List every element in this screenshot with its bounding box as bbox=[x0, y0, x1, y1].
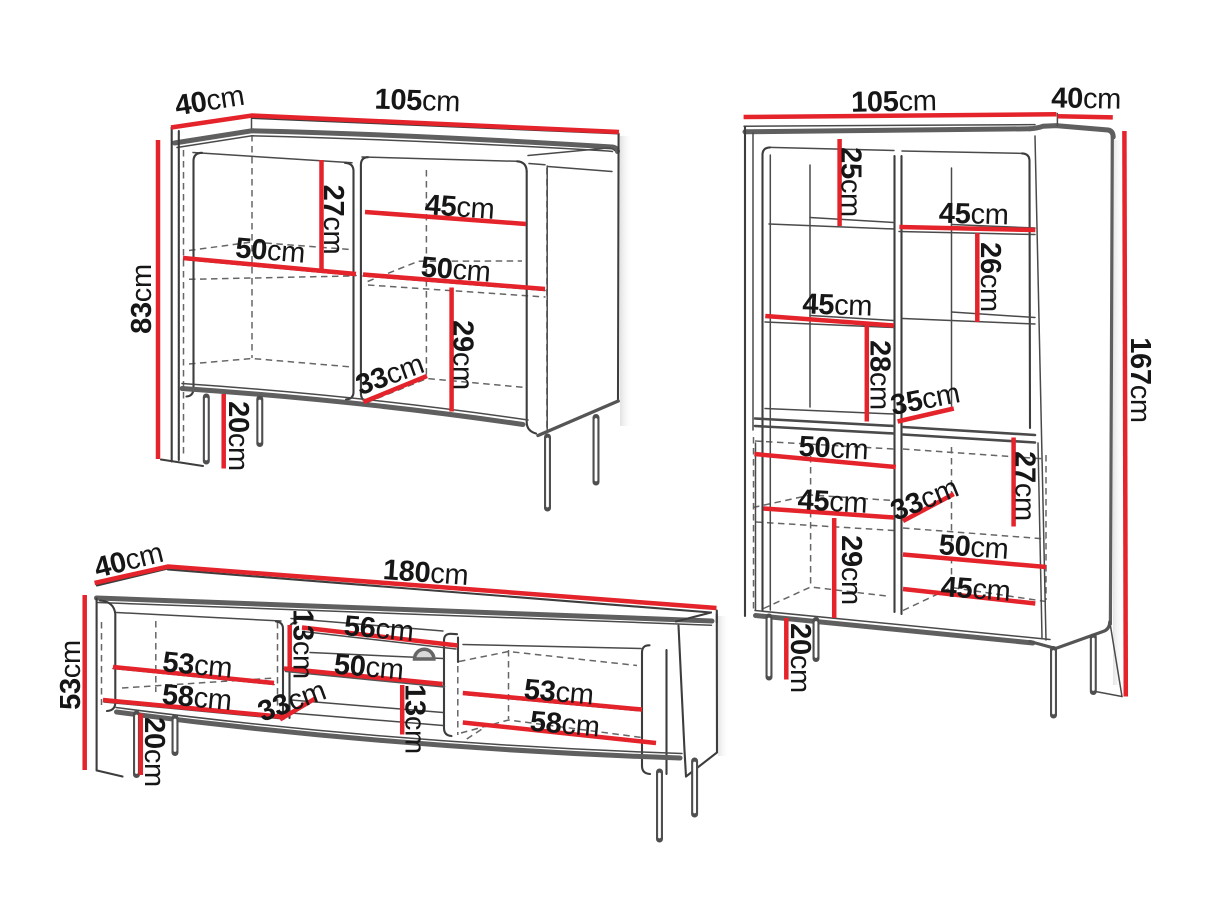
svg-text:45cm: 45cm bbox=[802, 288, 873, 322]
svg-text:45cm: 45cm bbox=[797, 484, 868, 520]
svg-text:29cm: 29cm bbox=[835, 535, 867, 605]
svg-text:50cm: 50cm bbox=[420, 251, 492, 288]
svg-text:20cm: 20cm bbox=[222, 401, 254, 471]
svg-text:50cm: 50cm bbox=[938, 529, 1010, 566]
svg-text:105cm: 105cm bbox=[851, 85, 937, 118]
svg-text:27cm: 27cm bbox=[317, 185, 349, 255]
svg-text:167cm: 167cm bbox=[1124, 337, 1156, 423]
svg-text:45cm: 45cm bbox=[940, 571, 1012, 608]
svg-text:180cm: 180cm bbox=[382, 554, 470, 592]
svg-text:58cm: 58cm bbox=[161, 679, 233, 718]
svg-text:58cm: 58cm bbox=[529, 706, 601, 744]
svg-text:50cm: 50cm bbox=[333, 649, 405, 687]
svg-text:20cm: 20cm bbox=[138, 717, 170, 787]
svg-text:45cm: 45cm bbox=[938, 198, 1009, 232]
svg-text:25cm: 25cm bbox=[835, 147, 867, 217]
svg-text:50cm: 50cm bbox=[798, 431, 869, 467]
svg-text:105cm: 105cm bbox=[374, 84, 461, 119]
svg-text:13cm: 13cm bbox=[399, 684, 431, 754]
svg-text:50cm: 50cm bbox=[234, 232, 306, 269]
svg-text:26cm: 26cm bbox=[974, 242, 1006, 312]
svg-text:27cm: 27cm bbox=[1009, 451, 1041, 521]
svg-text:83cm: 83cm bbox=[126, 264, 158, 334]
svg-text:13cm: 13cm bbox=[287, 609, 319, 679]
svg-text:56cm: 56cm bbox=[343, 610, 415, 648]
svg-text:20cm: 20cm bbox=[784, 623, 816, 693]
svg-text:53cm: 53cm bbox=[55, 640, 87, 710]
svg-text:45cm: 45cm bbox=[424, 189, 496, 226]
svg-text:40cm: 40cm bbox=[1051, 82, 1121, 115]
svg-text:29cm: 29cm bbox=[447, 320, 479, 390]
